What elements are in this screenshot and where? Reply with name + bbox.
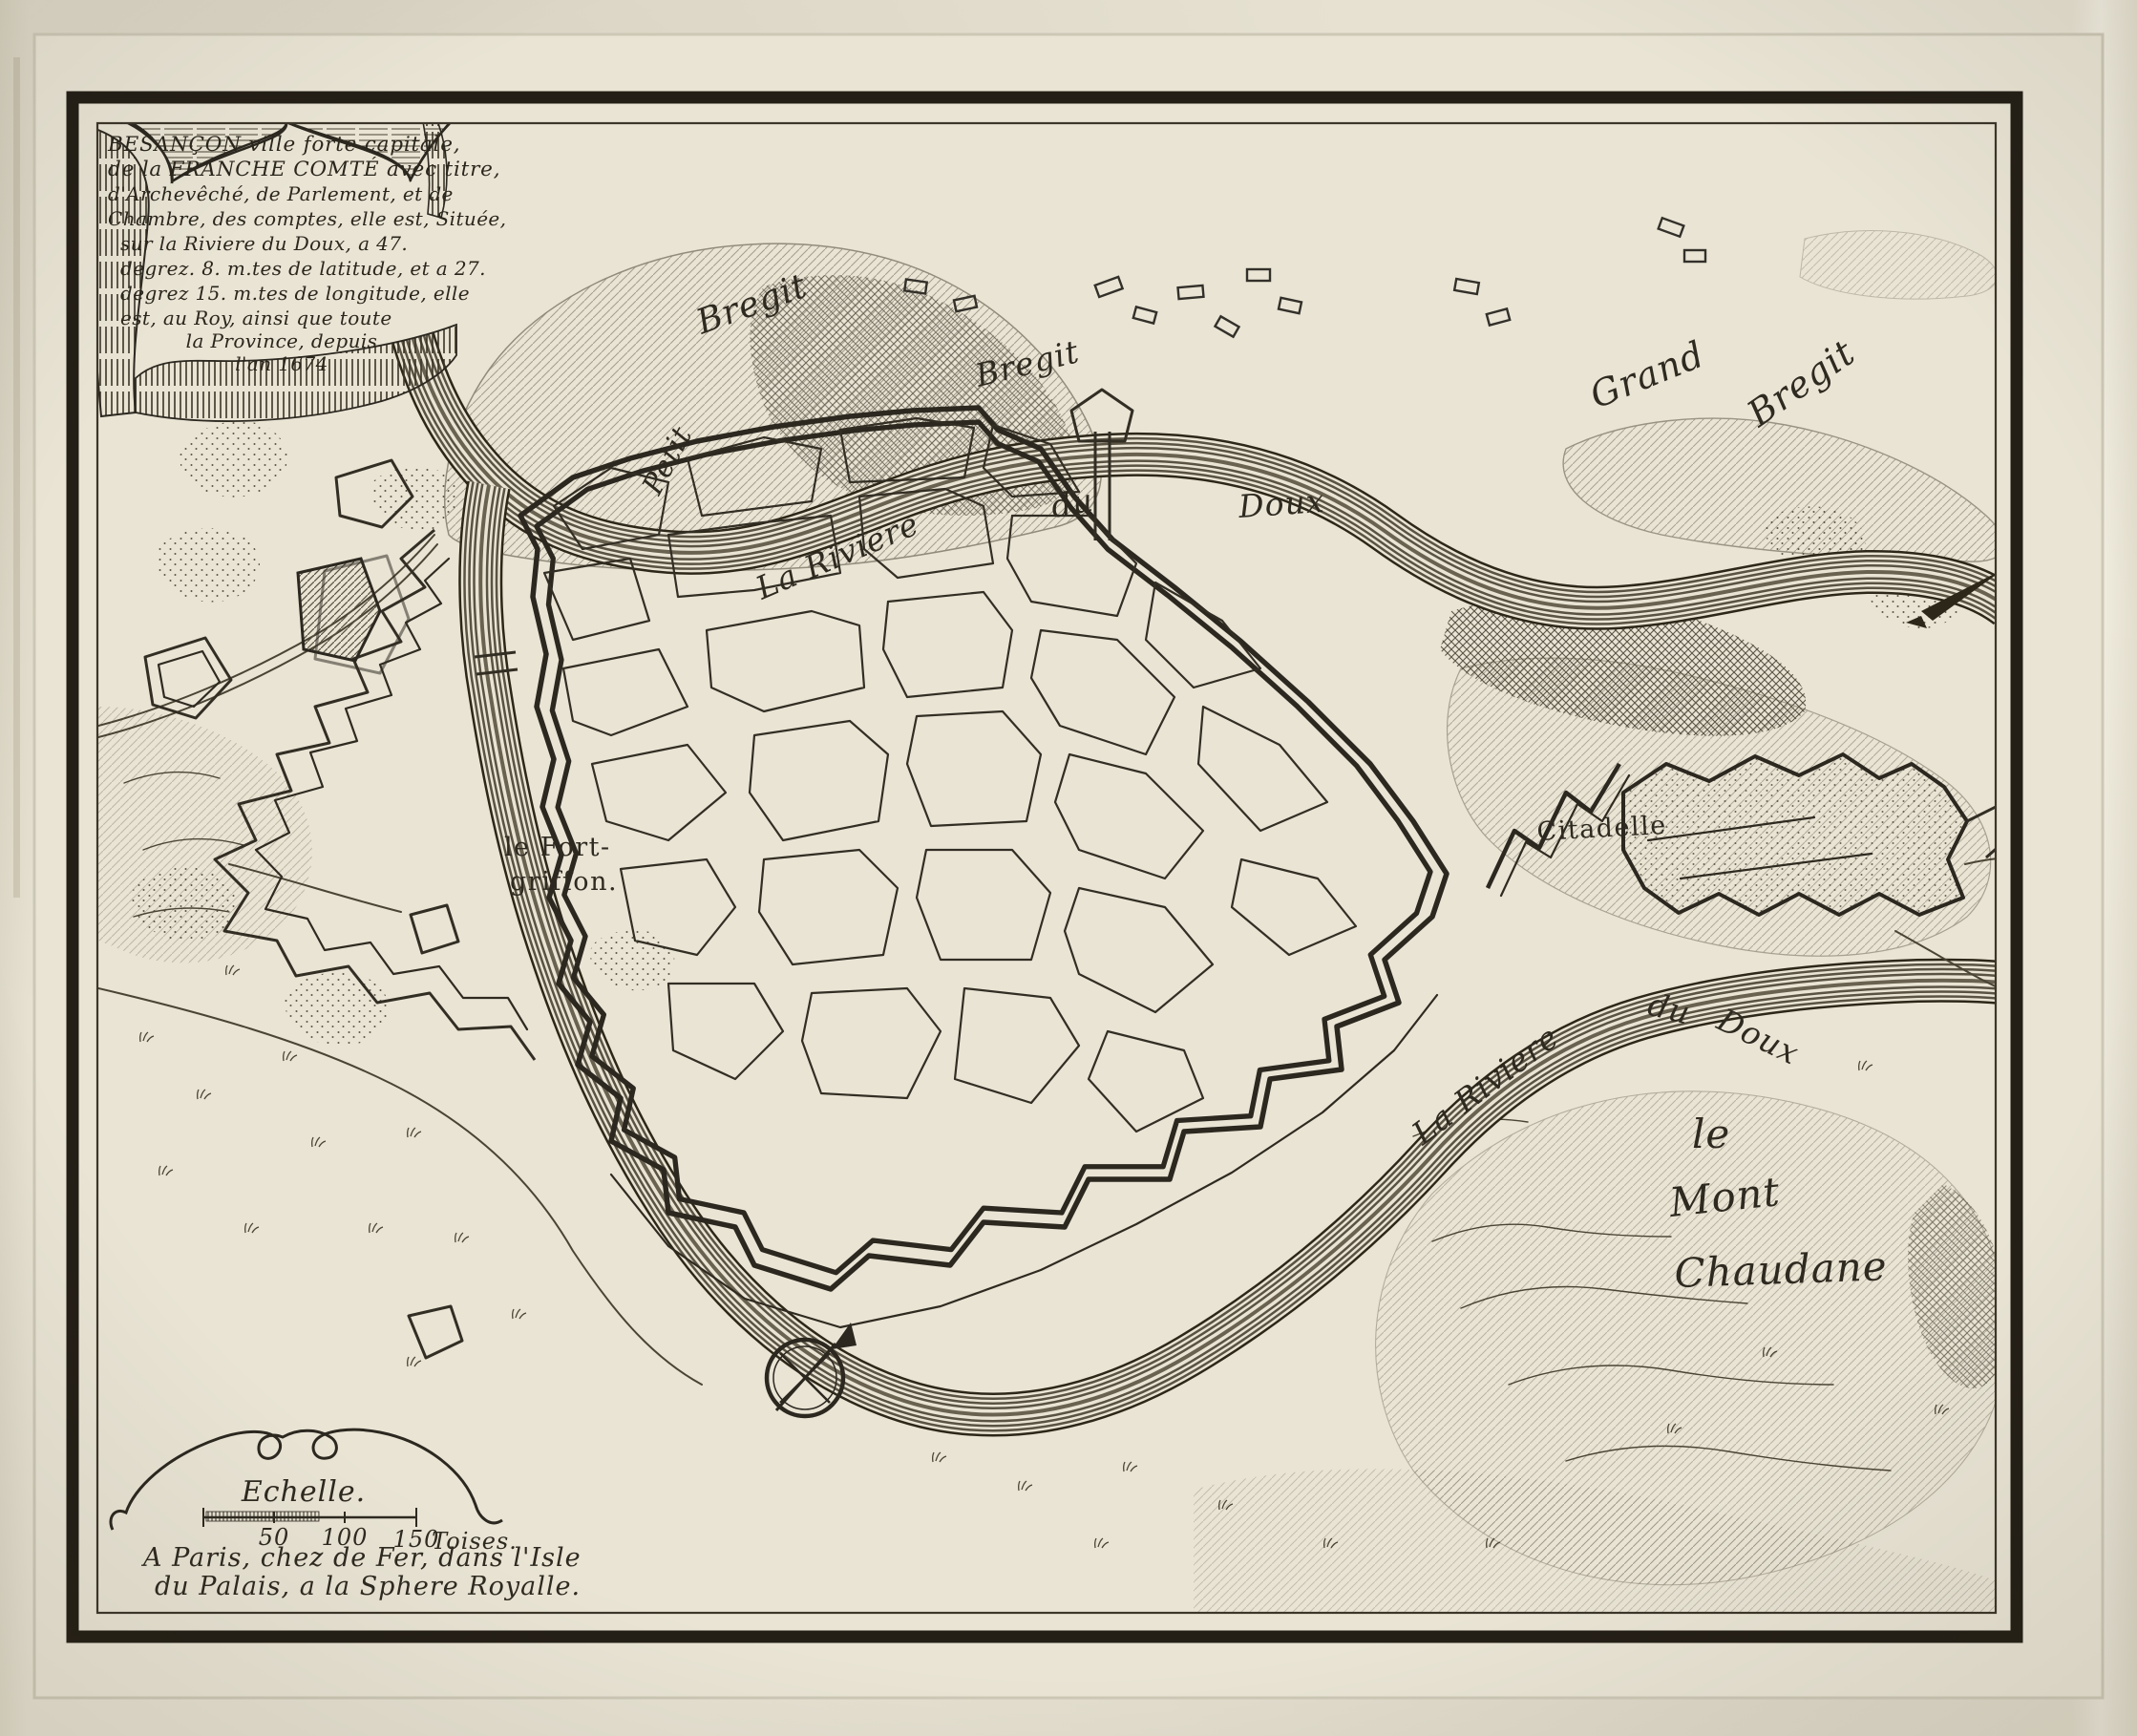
cartouche-line: sur la Riviere du Doux, a 47. bbox=[120, 232, 408, 255]
cartouche-line: la Province, depuis bbox=[186, 329, 378, 352]
cartouche-line: est, au Roy, ainsi que toute bbox=[120, 307, 392, 329]
scale-title: Echelle. bbox=[241, 1475, 366, 1509]
cartouche-line: de la FRANCHE COMTÉ avec titre, bbox=[108, 156, 500, 181]
imprint-line1: A Paris, chez de Fer, dans l'Isle bbox=[140, 1543, 582, 1573]
cartouche-line: Chambre, des comptes, elle est, Située, bbox=[108, 207, 506, 230]
map-canvas: BESANÇON ville forte capitale, de la FRA… bbox=[0, 0, 2137, 1736]
label-mont-le: le bbox=[1692, 1111, 1730, 1157]
cartouche-line: l'an 1674 bbox=[235, 352, 328, 375]
engraved-map-besancon: BESANÇON ville forte capitale, de la FRA… bbox=[0, 0, 2137, 1736]
cartouche-line: BESANÇON ville forte capitale, bbox=[107, 133, 460, 157]
label-river-top-doux: Doux bbox=[1237, 482, 1326, 525]
cartouche-line: d'Archevêché, de Parlement, et de bbox=[108, 182, 454, 205]
imprint-line2: du Palais, a la Sphere Royalle. bbox=[155, 1572, 581, 1601]
cartouche-line: degrez. 8. m.tes de latitude, et a 27. bbox=[120, 257, 486, 280]
label-river-top-du: du bbox=[1048, 481, 1096, 525]
label-fort-griffon-line1: le Fort- bbox=[504, 833, 611, 862]
cartouche-line: degrez 15. m.tes de longitude, elle bbox=[120, 282, 470, 305]
label-chaudane: Chaudane bbox=[1674, 1242, 1889, 1297]
label-fort-griffon-line2: griffon. bbox=[510, 867, 618, 897]
page-left-shadow bbox=[13, 57, 20, 898]
